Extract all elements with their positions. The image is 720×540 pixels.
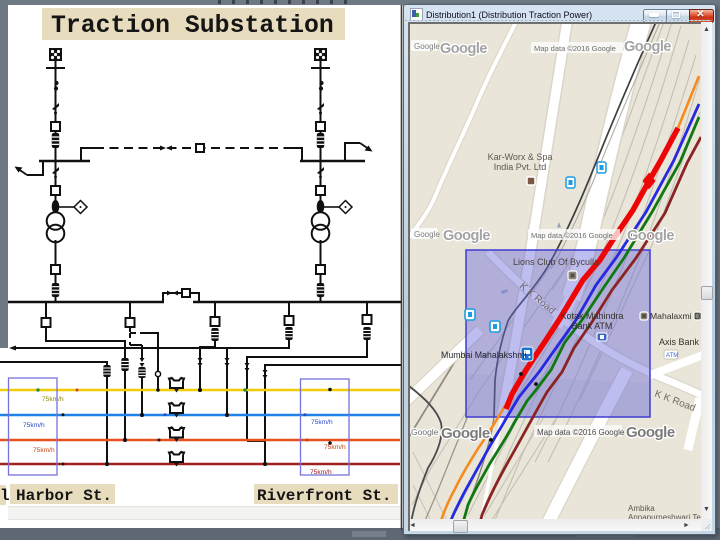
svg-text:Google: Google bbox=[626, 424, 675, 441]
svg-text:Map data ©2016 Google: Map data ©2016 Google bbox=[531, 231, 613, 240]
svg-text:75km/h: 75km/h bbox=[42, 396, 64, 403]
svg-text:Google: Google bbox=[627, 228, 674, 244]
svg-text:Google: Google bbox=[624, 39, 671, 55]
svg-text:Google: Google bbox=[440, 41, 487, 57]
svg-text:75km/h: 75km/h bbox=[311, 419, 333, 426]
svg-text:Map data ©2016 Google: Map data ©2016 Google bbox=[537, 428, 625, 437]
svg-text:75km/h: 75km/h bbox=[324, 444, 346, 451]
svg-text:Axis Bank A: Axis Bank A bbox=[659, 337, 701, 347]
svg-text:Google: Google bbox=[414, 230, 440, 239]
svg-text:ATM: ATM bbox=[666, 353, 678, 359]
svg-text:Ambika: Ambika bbox=[628, 504, 655, 513]
svg-text:Google: Google bbox=[441, 425, 490, 442]
svg-text:Kotak Mahindra: Kotak Mahindra bbox=[560, 311, 623, 321]
svg-text:Google: Google bbox=[414, 42, 440, 51]
svg-text:India Pvt. Ltd: India Pvt. Ltd bbox=[494, 162, 547, 172]
svg-text:Google: Google bbox=[411, 427, 439, 437]
svg-text:75km/h: 75km/h bbox=[310, 469, 332, 476]
svg-text:75km/h: 75km/h bbox=[23, 422, 45, 429]
svg-text:Mahalaxmi Dl: Mahalaxmi Dl bbox=[650, 311, 701, 321]
svg-text:Bank ATM: Bank ATM bbox=[572, 321, 613, 331]
svg-text:Lions Club Of Byculla: Lions Club Of Byculla bbox=[513, 257, 599, 267]
svg-text:Google: Google bbox=[443, 228, 490, 244]
svg-text:Kar-Worx & Spa: Kar-Worx & Spa bbox=[488, 152, 553, 162]
svg-text:Map data ©2016 Google: Map data ©2016 Google bbox=[534, 44, 616, 53]
svg-text:Mumbai Mahalakshmi: Mumbai Mahalakshmi bbox=[441, 350, 527, 360]
svg-text:75km/h: 75km/h bbox=[33, 447, 55, 454]
